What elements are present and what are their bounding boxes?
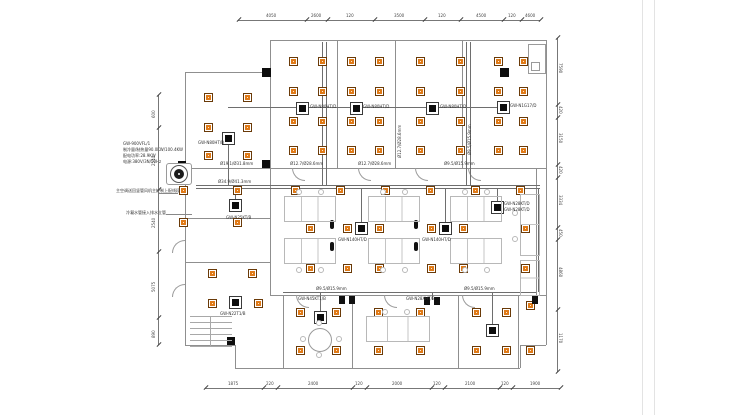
diffuser-icon (416, 346, 425, 355)
diffuser-icon (375, 146, 384, 155)
desk (368, 196, 420, 222)
diffuser-icon (416, 117, 425, 126)
column (262, 160, 270, 168)
stair-rail (210, 316, 211, 346)
dimension-value: 4500 (476, 14, 486, 18)
dimension-value: 220 (266, 382, 274, 386)
diffuser-icon (375, 87, 384, 96)
dimension-value: 5075 (152, 282, 156, 292)
diffuser-icon (179, 186, 188, 195)
diffuser-icon (318, 87, 327, 96)
diffuser-icon (427, 264, 436, 273)
door-arc (172, 240, 185, 253)
chair (316, 352, 322, 358)
diffuser-icon (494, 146, 503, 155)
diffuser-icon (289, 146, 298, 155)
diffuser-icon (416, 87, 425, 96)
diffuser-icon (179, 218, 188, 227)
pipe-size-label: Ø19.1/Ø31.8mm (220, 162, 253, 166)
pipe-size-label: Ø9.5/Ø15.9mm (316, 287, 347, 291)
diffuser-icon (318, 146, 327, 155)
diffuser-icon (289, 57, 298, 66)
diffuser-icon (472, 346, 481, 355)
dimension-value: 4860 (558, 267, 562, 277)
chair (484, 189, 490, 195)
dimension-value: 7590 (558, 63, 562, 73)
wall (235, 368, 520, 369)
indoor-unit-icon (486, 324, 499, 337)
wall (185, 262, 270, 263)
unit-label: GW-N45KT1/B (298, 297, 326, 301)
diffuser-icon (494, 117, 503, 126)
indoor-unit-icon (229, 199, 242, 212)
diffuser-icon (494, 87, 503, 96)
chair (462, 189, 468, 195)
diffuser-icon (374, 346, 383, 355)
dimension-value: 120 (346, 14, 354, 18)
fan-icon (178, 173, 180, 175)
diffuser-icon (456, 57, 465, 66)
chair (382, 309, 388, 315)
dimension-value: 1875 (228, 382, 238, 386)
diffuser-icon (456, 87, 465, 96)
diffuser-icon (456, 146, 465, 155)
diffuser-icon (204, 123, 213, 132)
dimension-value: 2540 (152, 218, 156, 228)
indoor-unit-icon (355, 222, 368, 235)
diffuser-icon (233, 186, 242, 195)
dimension-value: 1170 (558, 333, 562, 343)
diffuser-icon (204, 151, 213, 160)
unit-label: GW-N1G17/D (510, 104, 537, 108)
diffuser-icon (289, 87, 298, 96)
chair (402, 189, 408, 195)
dimension-tick (556, 35, 561, 40)
chair (316, 320, 322, 326)
shaft-equipment (531, 62, 540, 71)
diffuser-icon (471, 186, 480, 195)
wall (337, 40, 338, 168)
unit-label: GW-N28XHT/B (406, 297, 435, 301)
dimension-line (205, 388, 560, 389)
desk (366, 316, 430, 342)
chair (462, 267, 468, 273)
door-arc (172, 284, 185, 297)
page-border-line (642, 0, 643, 415)
stair-step (190, 346, 232, 347)
diffuser-icon (375, 57, 384, 66)
unit-label: GW-N25KT/B (226, 216, 251, 220)
diffuser-icon (347, 146, 356, 155)
dimension-value: 3500 (394, 14, 404, 18)
leader-line (158, 193, 178, 194)
diffuser-icon (306, 224, 315, 233)
diffuser-icon (375, 117, 384, 126)
diffuser-icon (519, 146, 528, 155)
diffuser-icon (336, 186, 345, 195)
diffuser-icon (502, 346, 511, 355)
dimension-value: 2000 (392, 382, 402, 386)
diffuser-icon (416, 146, 425, 155)
chair (484, 267, 490, 273)
stair-step (190, 334, 232, 335)
pipe (320, 292, 321, 312)
door-arc (292, 168, 305, 181)
dimension-value: 600 (152, 110, 156, 118)
diffuser-icon (208, 299, 217, 308)
desk (450, 196, 502, 222)
dimension-value: 2600 (311, 14, 321, 18)
dimension-value: 120 (508, 14, 516, 18)
unit-label: GW-N28KT/D (504, 208, 530, 212)
chair (296, 189, 302, 195)
diffuser-icon (204, 93, 213, 102)
diffuser-icon (472, 308, 481, 317)
diffuser-icon (208, 269, 217, 278)
desk (520, 260, 540, 296)
damper-icon (532, 296, 538, 304)
diffuser-icon (526, 346, 535, 355)
diffuser-icon (375, 224, 384, 233)
wall (185, 72, 270, 73)
wall (352, 295, 353, 368)
wall (283, 295, 284, 368)
pipe-size-label: Ø12.7/Ø28.6mm (358, 162, 391, 166)
chair (404, 309, 410, 315)
wall (458, 295, 459, 368)
diffuser-icon (416, 57, 425, 66)
unit-label: GW-N140HT/D (338, 238, 367, 242)
dimension-value: 3334 (558, 195, 562, 205)
door-arc (415, 168, 428, 181)
stair-step (190, 328, 232, 329)
diffuser-icon (427, 224, 436, 233)
chair (300, 336, 306, 342)
dimension-value: 4050 (266, 14, 276, 18)
dimension-value: 2540 (152, 156, 156, 166)
diffuser-icon (343, 264, 352, 273)
damper-icon (339, 296, 345, 304)
diffuser-icon (519, 117, 528, 126)
diffuser-icon (347, 117, 356, 126)
diffuser-icon (296, 346, 305, 355)
chair (318, 267, 324, 273)
diffuser-icon (306, 264, 315, 273)
door-arc (384, 295, 397, 308)
dimension-line (158, 95, 159, 345)
dimension-value: 420 (558, 166, 562, 174)
wall (270, 72, 271, 295)
wall (520, 345, 521, 368)
pipe (361, 189, 362, 224)
dimension-value: 890 (152, 330, 156, 338)
diffuser-icon (243, 123, 252, 132)
unit-label: GW-N28KT/D (504, 202, 530, 206)
dimension-line (238, 20, 540, 21)
column (227, 337, 235, 345)
pipe-size-label: Ø12.7/Ø28.6mm (398, 125, 402, 158)
unit-label: GW-N80HT/D (440, 105, 466, 109)
diffuser-icon (459, 224, 468, 233)
dimension-value: 2400 (308, 382, 318, 386)
diffuser-icon (296, 308, 305, 317)
indoor-unit-icon (350, 102, 363, 115)
desk (284, 196, 336, 222)
indoor-unit-icon (439, 222, 452, 235)
dimension-value: 450 (558, 229, 562, 237)
pipe-size-label: Ø9.5/Ø15.9mm (468, 124, 472, 155)
dimension-value: 120 (501, 382, 509, 386)
diffuser-icon (343, 224, 352, 233)
round-table (308, 328, 332, 352)
page-border-line (654, 0, 655, 415)
dimension-value: 3150 (558, 133, 562, 143)
damper-icon (349, 296, 355, 304)
stair-step (190, 322, 232, 323)
unit-label: GW-N22T1/B (220, 312, 246, 316)
diffuser-icon (347, 87, 356, 96)
diffuser-icon (347, 57, 356, 66)
pipe-size-label: Ø12.7/Ø28.6mm (290, 162, 323, 166)
note-text: 冷凝水管接入排水立管 (126, 211, 166, 215)
desk (368, 238, 420, 264)
chair (336, 336, 342, 342)
dimension-value: 420 (558, 106, 562, 114)
dimension-value: 1900 (530, 382, 540, 386)
pipe-size-label: Ø9.5/Ø15.9mm (444, 162, 475, 166)
dimension-value: 120 (355, 382, 363, 386)
diffuser-icon (426, 186, 435, 195)
wall (395, 40, 396, 168)
dimension-value: 2100 (465, 382, 475, 386)
chair (380, 189, 386, 195)
diffuser-icon (502, 308, 511, 317)
floor-plan-canvas: GW-900VFL/1 制冷量/制热量90.0KW/100.4KW 配电功率:2… (0, 0, 740, 415)
desk (284, 238, 336, 264)
indoor-unit-icon (497, 101, 510, 114)
diffuser-icon (243, 151, 252, 160)
dimension-value: 120 (433, 382, 441, 386)
dimension-value: 120 (438, 14, 446, 18)
wall (518, 295, 519, 368)
indoor-unit-icon (426, 102, 439, 115)
diffuser-icon (332, 346, 341, 355)
pipe (196, 185, 540, 186)
annotation-line: GW-900VFL/1 (123, 142, 150, 146)
unit-label: GW-N80HT/B (198, 141, 224, 145)
pipe-size-label: Ø34.9/Ø41.3mm (218, 180, 251, 184)
dimension-tick (559, 385, 564, 390)
leader-line (166, 214, 192, 215)
pipe (492, 292, 493, 324)
chair (512, 236, 518, 242)
indoor-unit-icon (229, 296, 242, 309)
diffuser-icon (318, 117, 327, 126)
wall (185, 72, 186, 345)
diffuser-icon (289, 117, 298, 126)
column (500, 68, 509, 77)
diffuser-icon (248, 269, 257, 278)
diffuser-icon (332, 308, 341, 317)
door-arc (462, 295, 475, 308)
diffuser-icon (519, 87, 528, 96)
door-arc (358, 168, 371, 181)
diffuser-icon (519, 57, 528, 66)
unit-label: GW-N80HT/D (310, 105, 336, 109)
stair-step (190, 340, 232, 341)
unit-label: GW-N80HT/D (363, 105, 389, 109)
dimension-value: 4600 (525, 14, 535, 18)
wall (546, 40, 547, 345)
pipe (445, 189, 446, 224)
column (262, 68, 271, 77)
unit-label: GW-N140HT/D (422, 238, 451, 242)
dimension-tick (539, 17, 544, 22)
chair (318, 189, 324, 195)
diffuser-icon (456, 117, 465, 126)
desk (450, 238, 502, 264)
dimension-tick (157, 92, 162, 97)
chair (402, 267, 408, 273)
wall (235, 345, 236, 368)
wall (270, 40, 546, 41)
diffuser-icon (243, 93, 252, 102)
diffuser-icon (494, 57, 503, 66)
chair (296, 267, 302, 273)
pipe-size-label: Ø9.5/Ø15.9mm (464, 287, 495, 291)
indoor-unit-icon (296, 102, 309, 115)
annotation-line: 制冷量/制热量90.0KW/100.4KW (123, 148, 183, 152)
diffuser-icon (254, 299, 263, 308)
diffuser-icon (318, 57, 327, 66)
chair (380, 267, 386, 273)
stair-step (190, 316, 232, 317)
